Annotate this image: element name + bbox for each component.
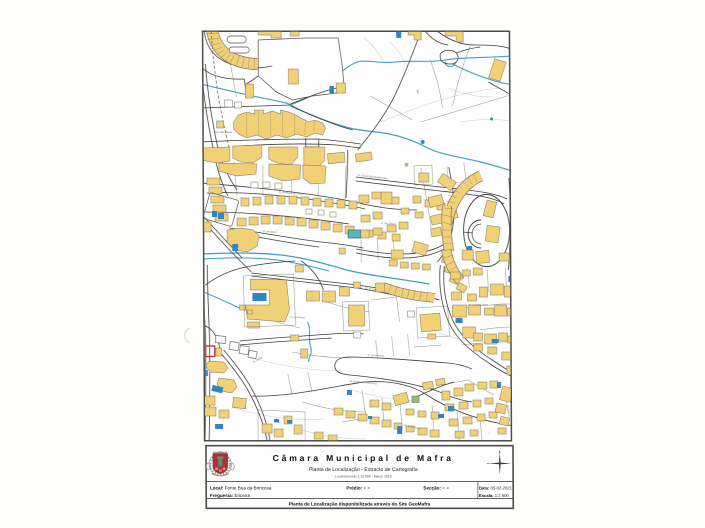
svg-text:Secção: < >: Secção: < > xyxy=(423,485,449,490)
svg-text:R. da Mimosa: R. da Mimosa xyxy=(368,353,385,358)
svg-text:Planta de Localização disponib: Planta de Localização disponibilizada at… xyxy=(289,502,431,507)
svg-text:Freguesia: Ericeira: Freguesia: Ericeira xyxy=(210,493,251,498)
svg-text:Local: Fonte Boa da Brincosa: Local: Fonte Boa da Brincosa xyxy=(210,485,272,490)
svg-text:R. da Graca: R. da Graca xyxy=(381,221,396,226)
svg-text:Escala: 1:2 500: Escala: 1:2 500 xyxy=(479,493,510,498)
svg-text:Câmara Municipal de Mafra: Câmara Municipal de Mafra xyxy=(273,453,454,463)
svg-text:Levantamento 1:10 000 - Março: Levantamento 1:10 000 - Março 2019 xyxy=(335,475,392,479)
svg-text:Data: 05-02-2021: Data: 05-02-2021 xyxy=(479,485,513,490)
svg-text:R. do Pinhal: R. do Pinhal xyxy=(291,315,306,320)
svg-text:Planta de Localização - Extrac: Planta de Localização - Extracto de Cart… xyxy=(309,467,418,473)
svg-text:R. da Bela Vista: R. da Bela Vista xyxy=(469,302,488,307)
svg-text:Prédio: < >: Prédio: < > xyxy=(346,485,370,490)
svg-text:Trav. das Flores: Trav. das Flores xyxy=(214,130,233,134)
